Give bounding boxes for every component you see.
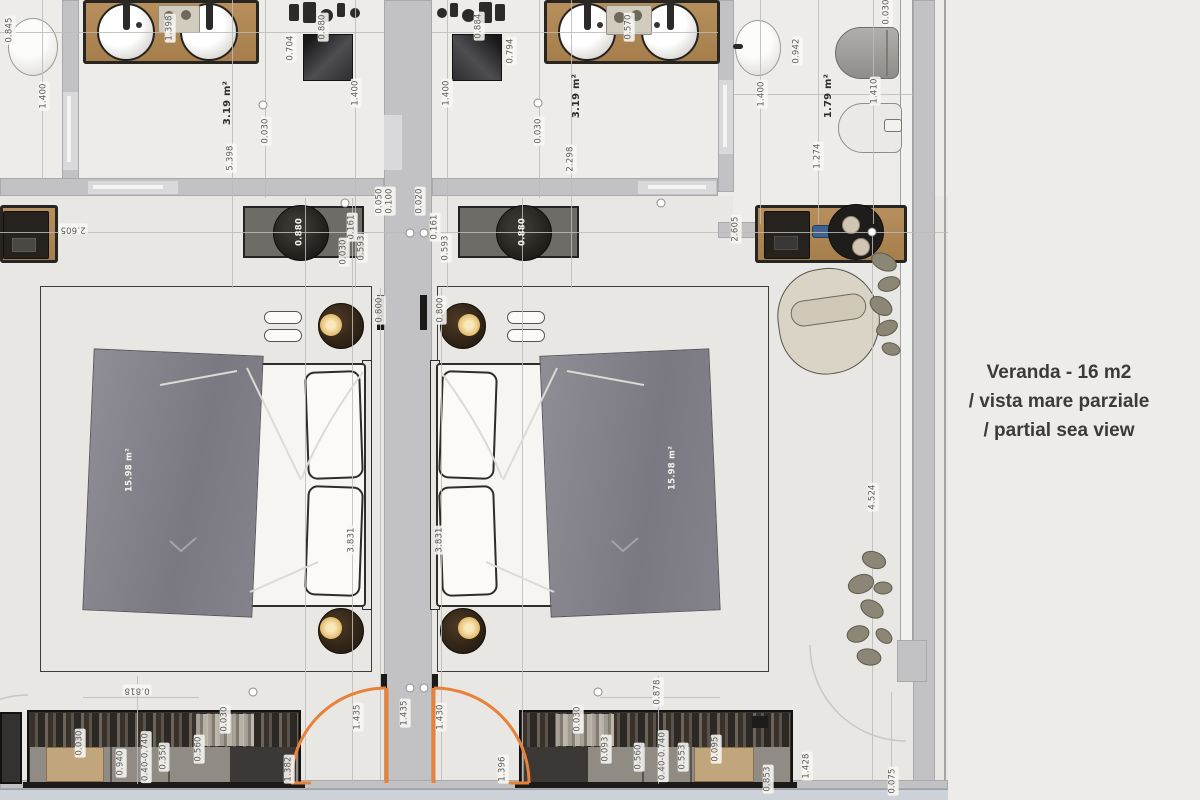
dimension-label: 4.524: [868, 482, 879, 511]
dimension-endpoint: [406, 684, 415, 693]
dimension-label: 1.382: [284, 754, 295, 783]
dimension-label: 0.880: [518, 216, 529, 248]
dimension-label: 1.400: [757, 79, 768, 108]
dimension-label: 0.095: [711, 734, 722, 763]
left-bathroom-wall: [0, 178, 384, 196]
dimension-line: [0, 232, 948, 233]
veranda-note-line-1: Veranda - 16 m2: [946, 359, 1172, 388]
dimension-label: 15.98 m²: [668, 444, 679, 492]
faucet: [123, 0, 130, 30]
faucet: [667, 0, 674, 30]
dimension-label: 0.40-0.740: [141, 731, 152, 783]
right-bed-pillow: [438, 485, 498, 597]
left-bathroom-door-leaf: [93, 185, 163, 189]
shower-niche: [384, 115, 402, 170]
dimension-label: 5.398: [226, 143, 237, 172]
dimension-label: 1.274: [813, 141, 824, 170]
wc-door-leaf: [723, 85, 727, 147]
dimension-label: 15.98 m²: [125, 446, 136, 494]
slipper: [507, 311, 545, 324]
dimension-label: 0.093: [601, 734, 612, 763]
corridor-strip: [0, 789, 948, 800]
dimension-label: 0.020: [415, 186, 426, 215]
right-wardrobe-dark-cabinet: [524, 747, 588, 782]
lamp-glow: [320, 617, 342, 639]
right-shower: [452, 34, 502, 81]
wc-sink-faucet: [733, 44, 743, 49]
coffee-cup: [852, 238, 870, 256]
toiletry-bottle: [337, 3, 345, 17]
dimension-label: 0.560: [634, 742, 645, 771]
dimension-line: [265, 0, 266, 198]
right-wardrobe-base: [515, 782, 797, 788]
dimension-label: 1.79 m²: [823, 72, 836, 120]
lamp-glow: [458, 617, 480, 639]
veranda-note-line-3: / partial sea view: [946, 417, 1172, 446]
bidet-faucet: [884, 119, 902, 132]
floor-plan-page: 0.8451.4001.3980.8800.7043.19 m²0.0305.3…: [0, 0, 1200, 800]
left-bed-pillow: [304, 370, 364, 480]
dimension-label: 0.794: [506, 36, 517, 65]
dimension-label: 3.831: [435, 525, 446, 554]
dimension-label: 3.19 m²: [222, 79, 235, 127]
dimension-label: 0.942: [792, 36, 803, 65]
dimension-label: 2.605: [58, 224, 87, 235]
sink-drain: [597, 22, 603, 28]
slipper: [264, 329, 302, 342]
door-jamb: [432, 674, 438, 688]
dimension-label: 0.845: [5, 15, 16, 44]
adjacent-room-sink: [8, 18, 58, 76]
minibar-screen: [774, 236, 798, 250]
dimension-label: 0.553: [678, 742, 689, 771]
dimension-label: 0.884: [474, 11, 485, 40]
lamp-glow: [320, 314, 342, 336]
dimension-label: 0.030: [220, 704, 231, 733]
sink-drain: [136, 22, 142, 28]
window-glazing: [900, 0, 913, 642]
veranda-note: Veranda - 16 m2 / vista mare parziale / …: [946, 359, 1172, 446]
dimension-endpoint: [420, 229, 429, 238]
armchair: [771, 261, 887, 380]
dimension-label: 1.435: [400, 698, 411, 727]
dimension-endpoint: [657, 199, 666, 208]
wardrobe-divider: [690, 747, 692, 782]
right-bed-pillow: [438, 370, 498, 480]
dimension-line: [522, 198, 523, 784]
toiletry-bottle: [495, 4, 505, 21]
minibar-tray: [764, 211, 810, 259]
dimension-label: 0.161: [430, 212, 441, 241]
dimension-label: 1.398: [165, 13, 176, 42]
dimension-label: 1.396: [498, 754, 509, 783]
dimension-endpoint: [341, 199, 350, 208]
dimension-label: 0.350: [159, 742, 170, 771]
toiletry-bottle: [450, 3, 458, 17]
dimension-label: 1.435: [353, 702, 364, 731]
dimension-label: 0.880: [318, 12, 329, 41]
door-jamb: [420, 295, 427, 330]
dimension-endpoint: [259, 101, 268, 110]
toiletry-bottle: [289, 4, 299, 21]
wall-pier: [897, 640, 927, 682]
dimension-endpoint: [406, 229, 415, 238]
veranda-note-line-2: / vista mare parziale: [946, 388, 1172, 417]
dimension-endpoint: [594, 688, 603, 697]
toilet-tank-line: [886, 30, 888, 76]
dimension-endpoint: [249, 688, 258, 697]
dimension-line: [380, 288, 381, 780]
dimension-label: 0.030: [75, 728, 86, 757]
dimension-label: 0.800: [436, 295, 447, 324]
dimension-endpoint: [534, 99, 543, 108]
lamp-glow: [458, 314, 480, 336]
dimension-label: 2.298: [566, 144, 577, 173]
right-wardrobe-shelf-item: [752, 716, 768, 728]
dimension-line: [873, 0, 874, 224]
dimension-label: 0.030: [261, 116, 272, 145]
dimension-label: 0.570: [624, 12, 635, 41]
dimension-label: 0.940: [116, 748, 127, 777]
dimension-label: 0.800: [375, 295, 386, 324]
dimension-endpoint: [420, 684, 429, 693]
dimension-label: 1.400: [39, 81, 50, 110]
adjacent-console-screen: [12, 238, 36, 252]
right-wardrobe-bench: [694, 747, 754, 782]
dimension-line: [83, 697, 199, 698]
dimension-label: 0.704: [286, 33, 297, 62]
wardrobe-divider: [110, 747, 112, 782]
dimension-label: 2.605: [731, 214, 742, 243]
left-wardrobe-base: [23, 782, 305, 788]
faucet: [206, 0, 213, 30]
adjacent-room-wardrobe: [0, 712, 22, 784]
dimension-label: 1.410: [870, 76, 881, 105]
dimension-label: 1.430: [436, 702, 447, 731]
slipper: [507, 329, 545, 342]
armchair-backrest: [789, 292, 868, 328]
dimension-label: 1.400: [351, 78, 362, 107]
dimension-line: [818, 0, 819, 224]
dimension-label: 1.400: [442, 78, 453, 107]
dimension-label: 0.40-0.740: [658, 730, 669, 782]
floor-plan: 0.8451.4001.3980.8800.7043.19 m²0.0305.3…: [0, 0, 948, 800]
dimension-label: 3.19 m²: [571, 72, 584, 120]
toiletry-bottle: [303, 2, 316, 23]
left-bed-runner: [82, 348, 263, 617]
sink-drain: [654, 22, 660, 28]
left-wc-door-leaf: [67, 96, 71, 162]
faucet: [584, 0, 591, 30]
dimension-line: [352, 198, 353, 784]
dimension-label: 0.560: [194, 734, 205, 763]
toiletry-jar: [437, 8, 447, 18]
dimension-label: 0.593: [357, 233, 368, 262]
dimension-line: [760, 0, 761, 224]
dimension-endpoint: [868, 228, 877, 237]
dimension-label: 0.075: [888, 766, 899, 795]
dimension-label: 0.853: [763, 764, 774, 793]
dimension-label: 1.428: [802, 751, 813, 780]
dimension-label: 0.030: [882, 0, 893, 27]
dimension-label: 0.030: [573, 704, 584, 733]
soap: [181, 10, 191, 20]
toilet: [835, 27, 899, 79]
right-bathroom-door-leaf: [648, 185, 706, 189]
slipper: [264, 311, 302, 324]
dimension-label: 0.593: [441, 233, 452, 262]
dimension-line: [305, 198, 306, 784]
dimension-label: 0.878: [653, 677, 664, 706]
dimension-label: 0.030: [339, 237, 350, 266]
dimension-label: 0.818: [122, 685, 151, 696]
dimension-label: 0.030: [534, 116, 545, 145]
dimension-label: 0.100: [385, 186, 396, 215]
dimension-label: 3.831: [347, 525, 358, 554]
dimension-label: 0.880: [295, 216, 306, 248]
right-bed-runner: [539, 348, 720, 617]
door-jamb: [381, 674, 387, 688]
